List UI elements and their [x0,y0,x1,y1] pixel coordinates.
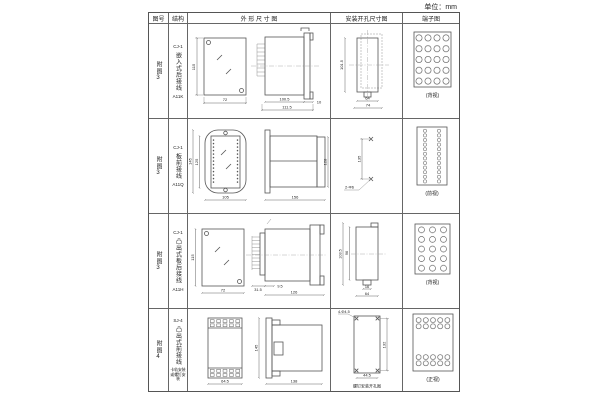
row2-terminal-diagram: (前视) [403,119,458,213]
row3-outline-cell: 115 72 [188,214,331,309]
row3-mount-dim-h1: 16 [365,285,369,289]
row3-mounting-drawing: 103.5 96 16 64 [331,214,402,308]
row1-code-label: A11K [173,94,184,99]
row3-mount-dim-v1: 103.5 [338,249,342,259]
header-structure: 结构 [169,13,188,24]
row3-terminal-caption: (背视) [426,279,440,286]
row4-structure: SJ-4 凸出式前接线 卡轨安装或螺钉安装 [169,309,188,391]
row3-mount-dim-v2: 96 [345,251,349,255]
row3-dim-d1: 31.5 [254,288,261,292]
row3-terminal-cell: (背视) [403,214,459,309]
row3-structure: CJ-1 凸出式板后接线 A11H [169,214,188,309]
row4-dim-front-width: 64.5 [221,379,230,384]
row1-model-label: CJ-1 [173,44,183,49]
row1-mounting-cell: 101.5 64 74 [331,24,403,119]
row4-mounting-cell: 4-Φ4.5 132 44.5 螺钉安装开孔图 [331,309,403,391]
row3-fig-no: 附图3 [149,214,169,309]
row4-type-label: 凸出式前接线 [174,326,183,365]
row3-dim-d2: 9.5 [277,285,282,289]
row1-fig-no: 附图3 [149,24,169,119]
row2-structure: CJ-1 板前接线 A11Q [169,119,188,214]
row4-dim-side-height: 145 [253,344,258,351]
row2-dim-depth: 156 [292,195,299,200]
row1-side-view: 100.5 10 111.5 [251,28,322,111]
row2-outline-cell: 145 125 105 156 128 [188,119,331,214]
row2-terminal-caption: (前视) [425,190,439,197]
row4-mount-note: 4-Φ4.5 [338,310,350,314]
header-structure-label: 结构 [172,14,184,23]
row3-model-label: CJ-1 [173,230,183,235]
row4-dim-depth: 138 [291,379,298,384]
spec-table: 图号 结构 外 形 尺 寸 图 安装开孔尺寸图 端子图 附图3 CJ-1 嵌入式… [148,12,460,392]
row1-mount-dim-v: 101.5 [339,59,344,70]
row1-mount-dim-h1: 64 [365,96,370,101]
row3-side-view: 31.5 9.5 126 [246,219,327,295]
row1-terminal-caption: (背视) [426,92,440,99]
row3-type-label: 凸出式板后接线 [174,238,183,284]
row1-terminal-cell: (背视) [403,24,459,119]
row4-terminal-cell: (正视) [403,309,459,391]
row2-dim-side-height: 128 [322,158,327,165]
page: 单位：mm 图号 结构 外 形 尺 寸 图 安装开孔尺寸图 端子图 附图3 CJ… [0,0,600,400]
row4-model-label: SJ-4 [173,318,182,323]
row2-mount-dim-v: 135 [356,155,361,162]
row3-dim-front-width: 72 [221,288,226,293]
row4-outline-drawing: 64.5 145 138 [188,309,330,390]
row1-mount-dim-h2: 74 [366,103,371,108]
row1-outline-cell: 115 72 [188,24,331,119]
row1-dim-flange: 10 [317,100,322,105]
row2-dim-height-inner: 125 [194,158,199,165]
row1-dim-front-height: 115 [191,63,196,70]
header-fig-no-label: 图号 [152,14,164,23]
row3-fig-no-label: 附图3 [154,251,163,272]
row2-model-label: CJ-1 [173,145,183,150]
row1-type-label: 嵌入式后接线 [174,52,183,91]
row1-structure: CJ-1 嵌入式后接线 A11K [169,24,188,119]
header-outline: 外 形 尺 寸 图 [188,13,331,24]
row3-terminal-diagram: (背视) [403,214,458,308]
row1-mounting-drawing: 101.5 64 74 [331,24,402,118]
row4-mount-caption: 螺钉安装开孔图 [353,383,381,389]
row2-mount-note: 2-Φ6 [345,185,355,190]
row2-fig-no: 附图3 [149,119,169,214]
header-terminal-label: 端子图 [422,14,440,23]
header-terminal: 端子图 [403,13,459,24]
row2-fig-no-label: 附图3 [154,156,163,177]
row4-side-view: 145 138 [253,318,322,384]
row4-terminal-diagram: (正视) [403,309,458,390]
row1-dim-depth-inner: 100.5 [279,97,290,102]
row2-front-view: 145 125 105 [188,130,246,200]
row3-dim-front-height: 115 [190,254,195,261]
row4-mounting-note: 卡轨安装或螺钉安装 [170,368,187,382]
row4-fig-no: 附图4 [149,309,169,391]
row4-mounting-drawing: 4-Φ4.5 132 44.5 螺钉安装开孔图 [331,309,402,390]
row1-fig-no-label: 附图3 [154,61,163,82]
row2-dim-width: 105 [222,195,229,200]
row4-front-view: 64.5 [208,318,242,384]
row2-type-label: 板前接线 [174,153,183,179]
row2-mounting-drawing: 135 2-Φ6 [331,119,402,213]
row3-mount-dim-h2: 64 [365,292,369,296]
row2-mounting-cell: 135 2-Φ6 [331,119,403,214]
row1-terminal-diagram: (背视) [403,24,458,118]
row2-code-label: A11Q [172,182,183,187]
row4-terminal-caption: (正视) [426,376,440,383]
row2-outline-drawing: 145 125 105 156 128 [188,119,330,213]
header-outline-label: 外 形 尺 寸 图 [241,14,278,23]
row3-dim-d3: 126 [291,290,298,295]
row2-side-view: 156 128 [265,130,328,200]
header-mounting: 安装开孔尺寸图 [331,13,403,24]
row2-terminal-cell: (前视) [403,119,459,214]
row3-front-view: 115 72 [190,229,244,293]
row2-dim-height-outer: 145 [188,157,193,164]
row4-outline-cell: 64.5 145 138 [188,309,331,391]
row3-code-label: A11H [173,287,184,292]
row1-outline-drawing: 115 72 [188,24,330,118]
row4-mount-dim-h: 44.5 [363,373,372,378]
row4-fig-no-label: 附图4 [154,340,163,361]
header-fig-no: 图号 [149,13,169,24]
row3-outline-drawing: 115 72 [188,214,330,308]
row4-mount-dim-v: 132 [381,341,386,348]
row1-dim-front-width: 72 [223,97,228,102]
row3-mounting-cell: 103.5 96 16 64 [331,214,403,309]
unit-label: 单位：mm [424,2,457,12]
row1-front-view: 115 72 [191,38,246,104]
row1-dim-depth-outer: 111.5 [282,105,292,110]
header-mounting-label: 安装开孔尺寸图 [345,14,387,23]
